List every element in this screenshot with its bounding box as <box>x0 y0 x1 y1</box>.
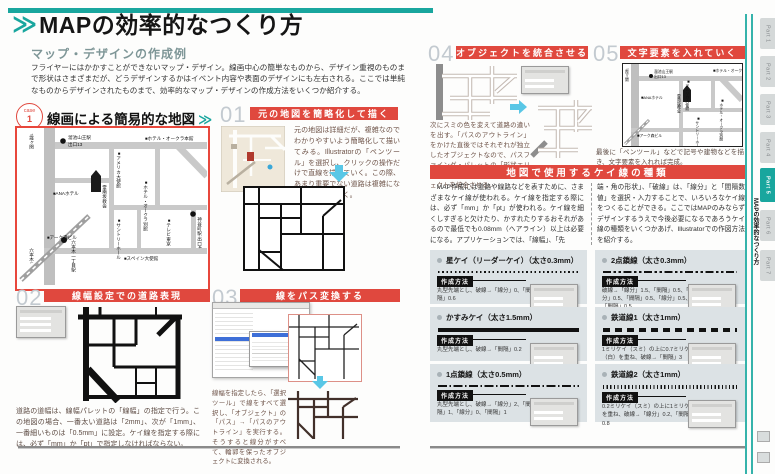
map-label-reinanzaka-church: 霊南坂教会 <box>102 185 108 208</box>
map-label-ana-hotel: ANAホテル <box>53 191 79 197</box>
line-item-title: 鉄道線2（太さ1mm） <box>611 369 685 380</box>
case-map-frame: ↑霞ヶ関 溜池山王駅 出口13 アメリカ大使館 ホテル・オークラ本館 ANAホテ… <box>15 126 210 291</box>
section-05-number: 05 <box>593 41 619 67</box>
tab-part3[interactable]: Part 3 <box>760 94 775 125</box>
pathfinder-palette-screenshot <box>521 66 569 94</box>
left-page-bottom-rule <box>18 446 400 449</box>
right-page-bottom-rule <box>430 446 745 449</box>
line-item-title-row: 鉄道線2（太さ1mm） <box>595 364 745 382</box>
keisen-band-title: 地図で使用するケイ線の種類 <box>430 165 745 179</box>
line-item-title-row: かすみケイ（太さ1.5mm） <box>430 307 587 325</box>
menu-highlight-row <box>215 337 253 341</box>
line-sample-dash-dot <box>438 385 579 387</box>
bullet-icon <box>602 258 607 263</box>
section-04-caption: 次にスミの色を変えて道路の違いを出す。「パスのアウトライン」をかけた直後ではそれ… <box>430 121 530 191</box>
bullet-icon <box>602 315 607 320</box>
original-map-thumbnail <box>221 126 285 192</box>
line-item-kasumikei: かすみケイ（太さ1.5mm） 作成方法 丸型先端とし、破線→「間隔」0.2 <box>430 307 587 361</box>
map-label-tameike-1: 溜池山王駅 <box>654 70 673 74</box>
outline-roads-map-before <box>430 64 517 120</box>
case-map-roads <box>17 128 207 285</box>
map-label-kasumigaseki: ↑霞ヶ関 <box>29 133 35 149</box>
map-label-okura-annex: ホテル・オークラ別館 <box>719 98 724 141</box>
case-map: ↑霞ヶ関 溜池山王駅 出口13 アメリカ大使館 ホテル・オークラ本館 ANAホテ… <box>17 128 207 285</box>
page-marker <box>757 452 770 463</box>
map-label-tameike-2: 出口13 <box>654 75 666 79</box>
map-label-okura-main: ホテル・オークラ本館 <box>145 136 193 142</box>
method-block: 作成方法 丸型先端とし、破線→「線分」2、「間隔」1、「線分」0、「間隔」1 <box>437 394 580 424</box>
case-heading-text: 線画による簡易的な地図 <box>47 112 195 127</box>
line-sample-railway1 <box>603 328 737 332</box>
page-marker <box>757 431 770 442</box>
map-label-kamiyacho: 神谷町駅 出口4 <box>197 217 203 248</box>
method-label: 作成方法 <box>602 335 638 346</box>
tab-part2[interactable]: Part 2 <box>760 56 775 87</box>
line-item-title-row: 1点鎖線（太さ0.5mm） <box>430 364 587 382</box>
map-label-roppongi-itchome: 六本木一丁目駅 <box>71 240 77 272</box>
section-05-header: 文字要素を入れていく <box>620 46 745 59</box>
simplified-line-map <box>243 186 345 271</box>
section-01-header: 元の地図を簡略化して描く <box>250 107 398 120</box>
book-spread: ≫ MAPの効率的なつくり方 マップ・デザインの作成例 フライヤーにはかかすこと… <box>0 0 775 474</box>
thin-line-map-frame <box>288 314 362 382</box>
map-label-reinanzaka-church: 霊南坂教会 <box>677 94 681 113</box>
line-item-2ten-sasen: 2点鎖線（太さ0.3mm） 作成方法 破線→「線分」1.5、「間隔」0.5、「線… <box>595 250 745 304</box>
down-arrow-icon <box>329 165 349 182</box>
station-dot-tameike <box>60 138 66 144</box>
map-label-suntory-hall: サントリーホール <box>695 116 700 147</box>
method-block: 作成方法 破線→「線分」1.5、「間隔」0.5、「線分」0.5、「間隔」0.5、… <box>602 280 738 310</box>
method-screenshot <box>530 398 578 426</box>
map-label-tameike-2: 出口13 <box>68 142 82 148</box>
line-item-title-row: 2点鎖線（太さ0.3mm） <box>595 250 745 268</box>
map-label-kasumigaseki: ↑霞ヶ関 <box>625 68 629 81</box>
keisen-body-col2: 端・角の形状」、「破線」は、「線分」と「間隔数値」を選択・入力することで、いろい… <box>597 183 745 246</box>
thin-line-map <box>289 315 359 379</box>
section-02-caption: 道路の道幅は、線幅パレットの「線幅」の指定で行う。この地図の場合、一番太い道路は… <box>16 407 200 450</box>
section-01-number: 01 <box>220 102 246 128</box>
outlined-path-map <box>288 391 358 439</box>
method-label: 作成方法 <box>437 276 473 287</box>
line-sample-dash-dot-dot <box>603 271 737 273</box>
keisen-body-col1: MAP作成には道路や線路などを表すために、さまざまなケイ線が使われる。ケイ線を指… <box>430 183 584 246</box>
outline-roads-map-after <box>530 98 592 158</box>
station-dot-kamiyacho <box>190 211 196 217</box>
column-divider <box>591 183 592 245</box>
line-item-railway1: 鉄道線1（太さ1mm） 作成方法 1ミリケイ（スミ）の上に0.7ミリケイ（白）を… <box>595 307 745 361</box>
bullet-icon <box>437 372 442 377</box>
map-label-spain-embassy: スペイン大使館 <box>124 256 158 262</box>
line-item-title-row: 鉄道線1（太さ1mm） <box>595 307 745 325</box>
section-02-header: 線幅設定での道路表現 <box>44 289 210 302</box>
map-label-america-embassy: アメリカ大使館 <box>685 79 690 111</box>
map-label-tv-tokyo: テレビ東京 <box>166 218 172 246</box>
title-chevron-icon: ≫ <box>12 13 37 37</box>
bullet-icon <box>602 372 607 377</box>
line-item-title: 鉄道線1（太さ1mm） <box>611 312 685 323</box>
line-sample-dotted <box>438 271 579 273</box>
case-heading: 線画による簡易的な地図≫ <box>47 108 212 128</box>
line-item-title: 星ケイ（リーダーケイ）（太さ0.3mm） <box>446 255 578 266</box>
section-03-caption: 線幅を指定したら、「選択ツール」で線をすべて選択し、「オブジェクト」の「パス」→… <box>212 389 286 467</box>
method-screenshot <box>688 400 736 428</box>
chapter-label: MAPの効率的なつくり方 <box>751 198 760 265</box>
tab-part6[interactable]: Part 6 <box>760 210 775 241</box>
case-badge-number: 1 <box>27 115 32 124</box>
right-arrow-icon <box>510 100 527 114</box>
menu-bar <box>213 303 309 309</box>
bullet-icon <box>437 315 442 320</box>
page-title-row: ≫ MAPの効率的なつくり方 <box>12 13 303 38</box>
intro-paragraph: フライヤーにはかかすことができないマップ・デザイン。線画中心の簡単なものから、デ… <box>31 62 405 96</box>
page-title: MAPの効率的なつくり方 <box>39 13 303 38</box>
line-item-title: かすみケイ（太さ1.5mm） <box>446 312 537 323</box>
menu-list <box>215 311 253 373</box>
line-item-title-row: 星ケイ（リーダーケイ）（太さ0.3mm） <box>430 250 587 268</box>
tab-part4[interactable]: Part 4 <box>760 132 775 163</box>
section-03-header: 線をパス変換する <box>240 289 400 302</box>
method-label: 作成方法 <box>602 276 638 287</box>
method-block: 作成方法 0.2ミリケイ（スミ）の上に1ミリケイを重ね、破線→「線分」0.2、「… <box>602 396 738 426</box>
line-item-1ten-sasen: 1点鎖線（太さ0.5mm） 作成方法 丸型先端とし、破線→「線分」2、「間隔」1… <box>430 364 587 422</box>
line-item-title: 2点鎖線（太さ0.3mm） <box>611 255 691 266</box>
tab-part1[interactable]: Part 1 <box>760 18 775 49</box>
method-label: 作成方法 <box>437 390 473 401</box>
page-subtitle: マップ・デザインの作成例 <box>31 45 187 62</box>
map-label-suntory-hall: サントリーホール <box>116 218 122 260</box>
method-label: 作成方法 <box>437 335 473 346</box>
stroke-palette-screenshot <box>16 306 66 338</box>
map-label-tameike-1: 溜池山王駅 <box>68 135 91 141</box>
tab-part7[interactable]: Part 7 <box>760 250 775 281</box>
weighted-line-map <box>70 303 186 403</box>
map-label-okura-annex: ホテル・オークラ別館 <box>143 180 149 231</box>
line-item-title: 1点鎖線（太さ0.5mm） <box>446 369 526 380</box>
line-item-hoshikei: 星ケイ（リーダーケイ）（太さ0.3mm） 作成方法 丸型先端とし、破線→「線分」… <box>430 250 587 304</box>
sidebar-teal-line <box>745 14 747 474</box>
tab-part5-active[interactable]: Part 5 <box>760 168 775 202</box>
map-label-okura-main: ホテル・オークラ本館 <box>713 69 743 74</box>
method-block: 作成方法 丸型先端とし、破線→「線分」0、「間隔」0.6 <box>437 280 580 310</box>
down-arrow-icon <box>312 376 328 389</box>
finished-map: ↑霞ヶ関 溜池山王駅 出口13 アメリカ大使館 ホテル・オークラ本館 ANAホテ… <box>622 63 743 147</box>
line-item-railway2: 鉄道線2（太さ1mm） 作成方法 0.2ミリケイ（スミ）の上に1ミリケイを重ね、… <box>595 364 745 422</box>
section-04-header: オブジェクトを統合させる <box>456 46 588 59</box>
bullet-icon <box>437 258 442 263</box>
method-label: 作成方法 <box>602 392 638 403</box>
line-sample-railway2 <box>603 385 737 389</box>
map-label-ark-mori: アーク森ビル <box>637 134 662 139</box>
line-sample-solid <box>438 328 579 332</box>
case-chevron-icon: ≫ <box>198 112 212 127</box>
map-label-america-embassy: アメリカ大使館 <box>116 151 122 188</box>
map-label-ana-hotel: ANAホテル <box>641 96 663 101</box>
map-label-roppongi: 六本木↓ <box>29 248 35 264</box>
